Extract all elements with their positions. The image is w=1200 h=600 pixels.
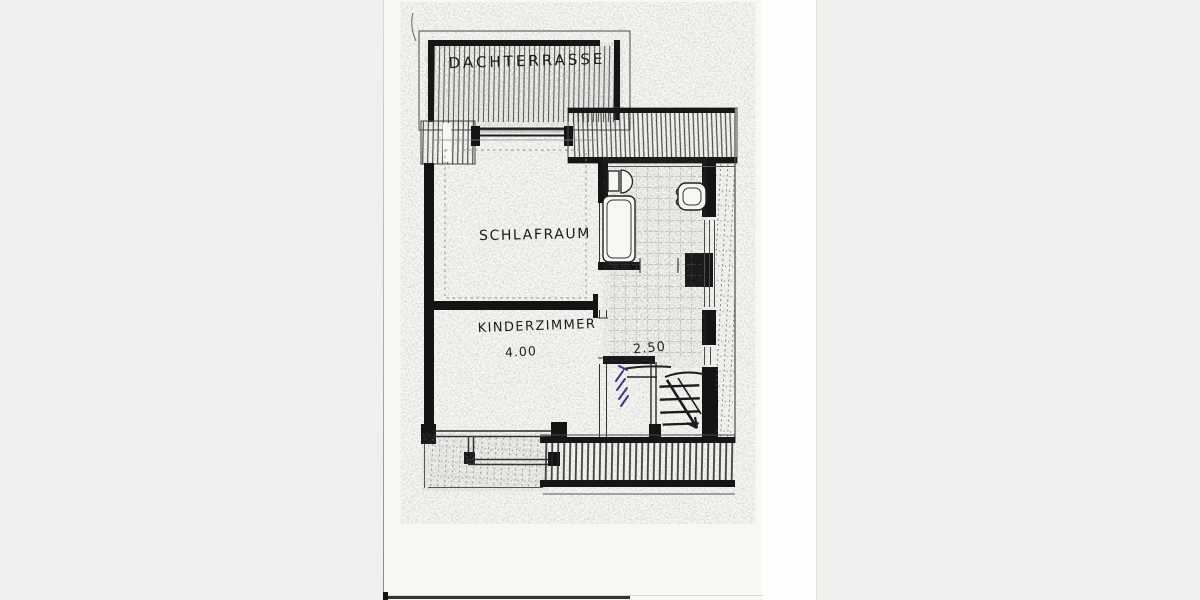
screenshot-root: { "scene": { "backdrop_color": "#f0efed"… — [0, 0, 1200, 600]
scan-bottom-corner-mark — [383, 592, 388, 600]
scanned-floorplan-photo: DACHTERRASSE SCHLAFRAUM KINDERZIMMER 4.0… — [383, 0, 817, 600]
room-label-schlafraum: SCHLAFRAUM — [467, 226, 603, 245]
stray-pencil-mark — [412, 13, 416, 41]
scan-bottom-dark-line — [383, 596, 630, 599]
scan-left-edge-shadow — [383, 0, 384, 600]
floorplan-drawing — [383, 0, 816, 600]
toilet-icon — [676, 183, 706, 210]
bathtub-icon — [603, 196, 635, 262]
dimension-stair-landing: 2.50 — [632, 340, 666, 358]
dimension-kinderzimmer: 4.00 — [505, 343, 538, 360]
balcony-railing — [540, 435, 735, 494]
